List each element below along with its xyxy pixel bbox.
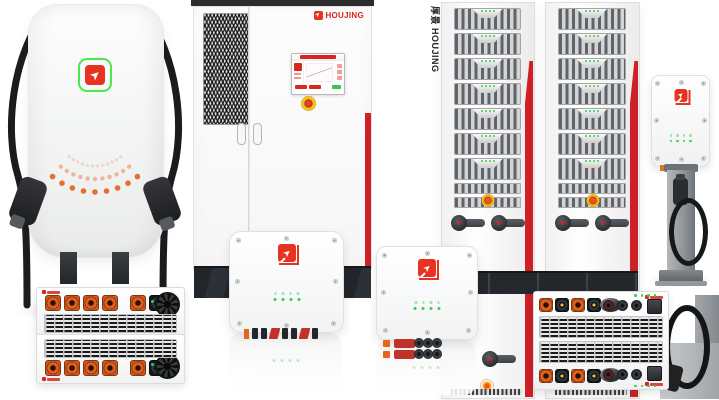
- screen-header: [292, 54, 344, 61]
- charger-foot: [112, 252, 129, 284]
- rotary-switch: [482, 351, 516, 367]
- houjing-logo-icon: ➤: [674, 89, 687, 102]
- rack-module: [558, 133, 626, 155]
- dc-connector-row: [45, 360, 165, 376]
- indicator-dot-arcs: [20, 138, 170, 218]
- emergency-stop-button: [301, 96, 316, 111]
- output-terminal: [647, 366, 662, 381]
- rack-modules: [454, 8, 521, 211]
- dc-connector-row: [539, 298, 601, 312]
- status-leds: [634, 385, 656, 388]
- door-handle: [253, 123, 262, 145]
- screen-chart: [306, 63, 333, 82]
- charger-foot: [60, 252, 77, 284]
- touchscreen-display: [291, 53, 345, 95]
- wallbox-charger-front: ➤: [229, 231, 344, 333]
- door-handle: [237, 123, 246, 145]
- power-rectifier-module: [36, 334, 185, 384]
- wallbox-on-pedestal: ➤: [640, 70, 719, 300]
- red-accent-stripe: [365, 113, 371, 273]
- coiled-cable: [669, 198, 708, 266]
- houjing-ev-charger-product-lineup: ➤ ➤ HOUJING: [0, 0, 719, 400]
- rack-module: [558, 158, 626, 180]
- wallbox-charger-side: ➤: [376, 246, 478, 340]
- houjing-logo-icon: ➤: [78, 58, 112, 92]
- dc-connector-row: [539, 369, 601, 383]
- rack-vent-row: [454, 183, 521, 194]
- rotary-switch: [451, 215, 485, 231]
- rack-module: [558, 33, 626, 55]
- power-rectifier-module: [36, 287, 185, 336]
- door-seam: [248, 7, 250, 269]
- charger-body: [28, 4, 164, 258]
- rack-module: [558, 58, 626, 80]
- rack-module: [454, 8, 521, 30]
- rack-module: [454, 108, 521, 130]
- rack-module: [454, 158, 521, 180]
- rack-module: [454, 83, 521, 105]
- rack-modules: [558, 8, 626, 211]
- rack-module: [558, 8, 626, 30]
- pedestal-base: [659, 270, 703, 282]
- screen-footer: [292, 84, 344, 90]
- houjing-logo-small: [42, 377, 60, 381]
- red-accent-stripe: [525, 61, 533, 273]
- vent-grille: [44, 339, 177, 358]
- houjing-logo-icon: ➤: [278, 244, 296, 262]
- rotary-switch: [595, 215, 629, 231]
- rotary-switch: [555, 215, 589, 231]
- houjing-logo-icon: ➤: [314, 11, 323, 20]
- wide-power-module: [533, 291, 669, 390]
- houjing-logo-icon: ➤: [418, 259, 436, 277]
- brand-name: HOUJING: [325, 11, 364, 20]
- red-accent-stripe: [630, 61, 638, 273]
- emergency-stop-button: [482, 194, 495, 207]
- status-leds: [670, 134, 692, 142]
- dc-connector-row: [45, 295, 165, 311]
- wallbox-reflection: [229, 333, 342, 395]
- status-leds: [414, 301, 441, 310]
- output-terminal: [647, 299, 662, 314]
- round-terminals: [603, 369, 642, 380]
- status-leds: [634, 294, 656, 297]
- houjing-brand-badge: ➤ HOUJING: [314, 11, 364, 20]
- terminal-row: [383, 338, 442, 348]
- ventilation-grille: [203, 13, 250, 125]
- terminal-row: [383, 349, 442, 359]
- rack-vent-row: [558, 183, 626, 194]
- red-accent-stripe: [525, 293, 533, 397]
- houjing-logo-small: [42, 290, 60, 294]
- rack-module: [454, 133, 521, 155]
- vent-grille: [44, 314, 177, 333]
- status-leds: [273, 292, 300, 301]
- rack-module: [454, 58, 521, 80]
- screen-body: [292, 61, 344, 84]
- terminal-row: [244, 328, 329, 339]
- rack-module: [558, 108, 626, 130]
- vent-grille: [539, 316, 663, 338]
- rack-module: [558, 83, 626, 105]
- vent-grille: [539, 341, 663, 363]
- logo-arrow-glyph: ➤: [81, 61, 109, 89]
- wallbox-charger: ➤: [651, 75, 710, 167]
- round-terminals: [603, 300, 642, 311]
- rotary-switch: [491, 215, 525, 231]
- rack-module: [454, 33, 521, 55]
- emergency-stop-button: [586, 194, 599, 207]
